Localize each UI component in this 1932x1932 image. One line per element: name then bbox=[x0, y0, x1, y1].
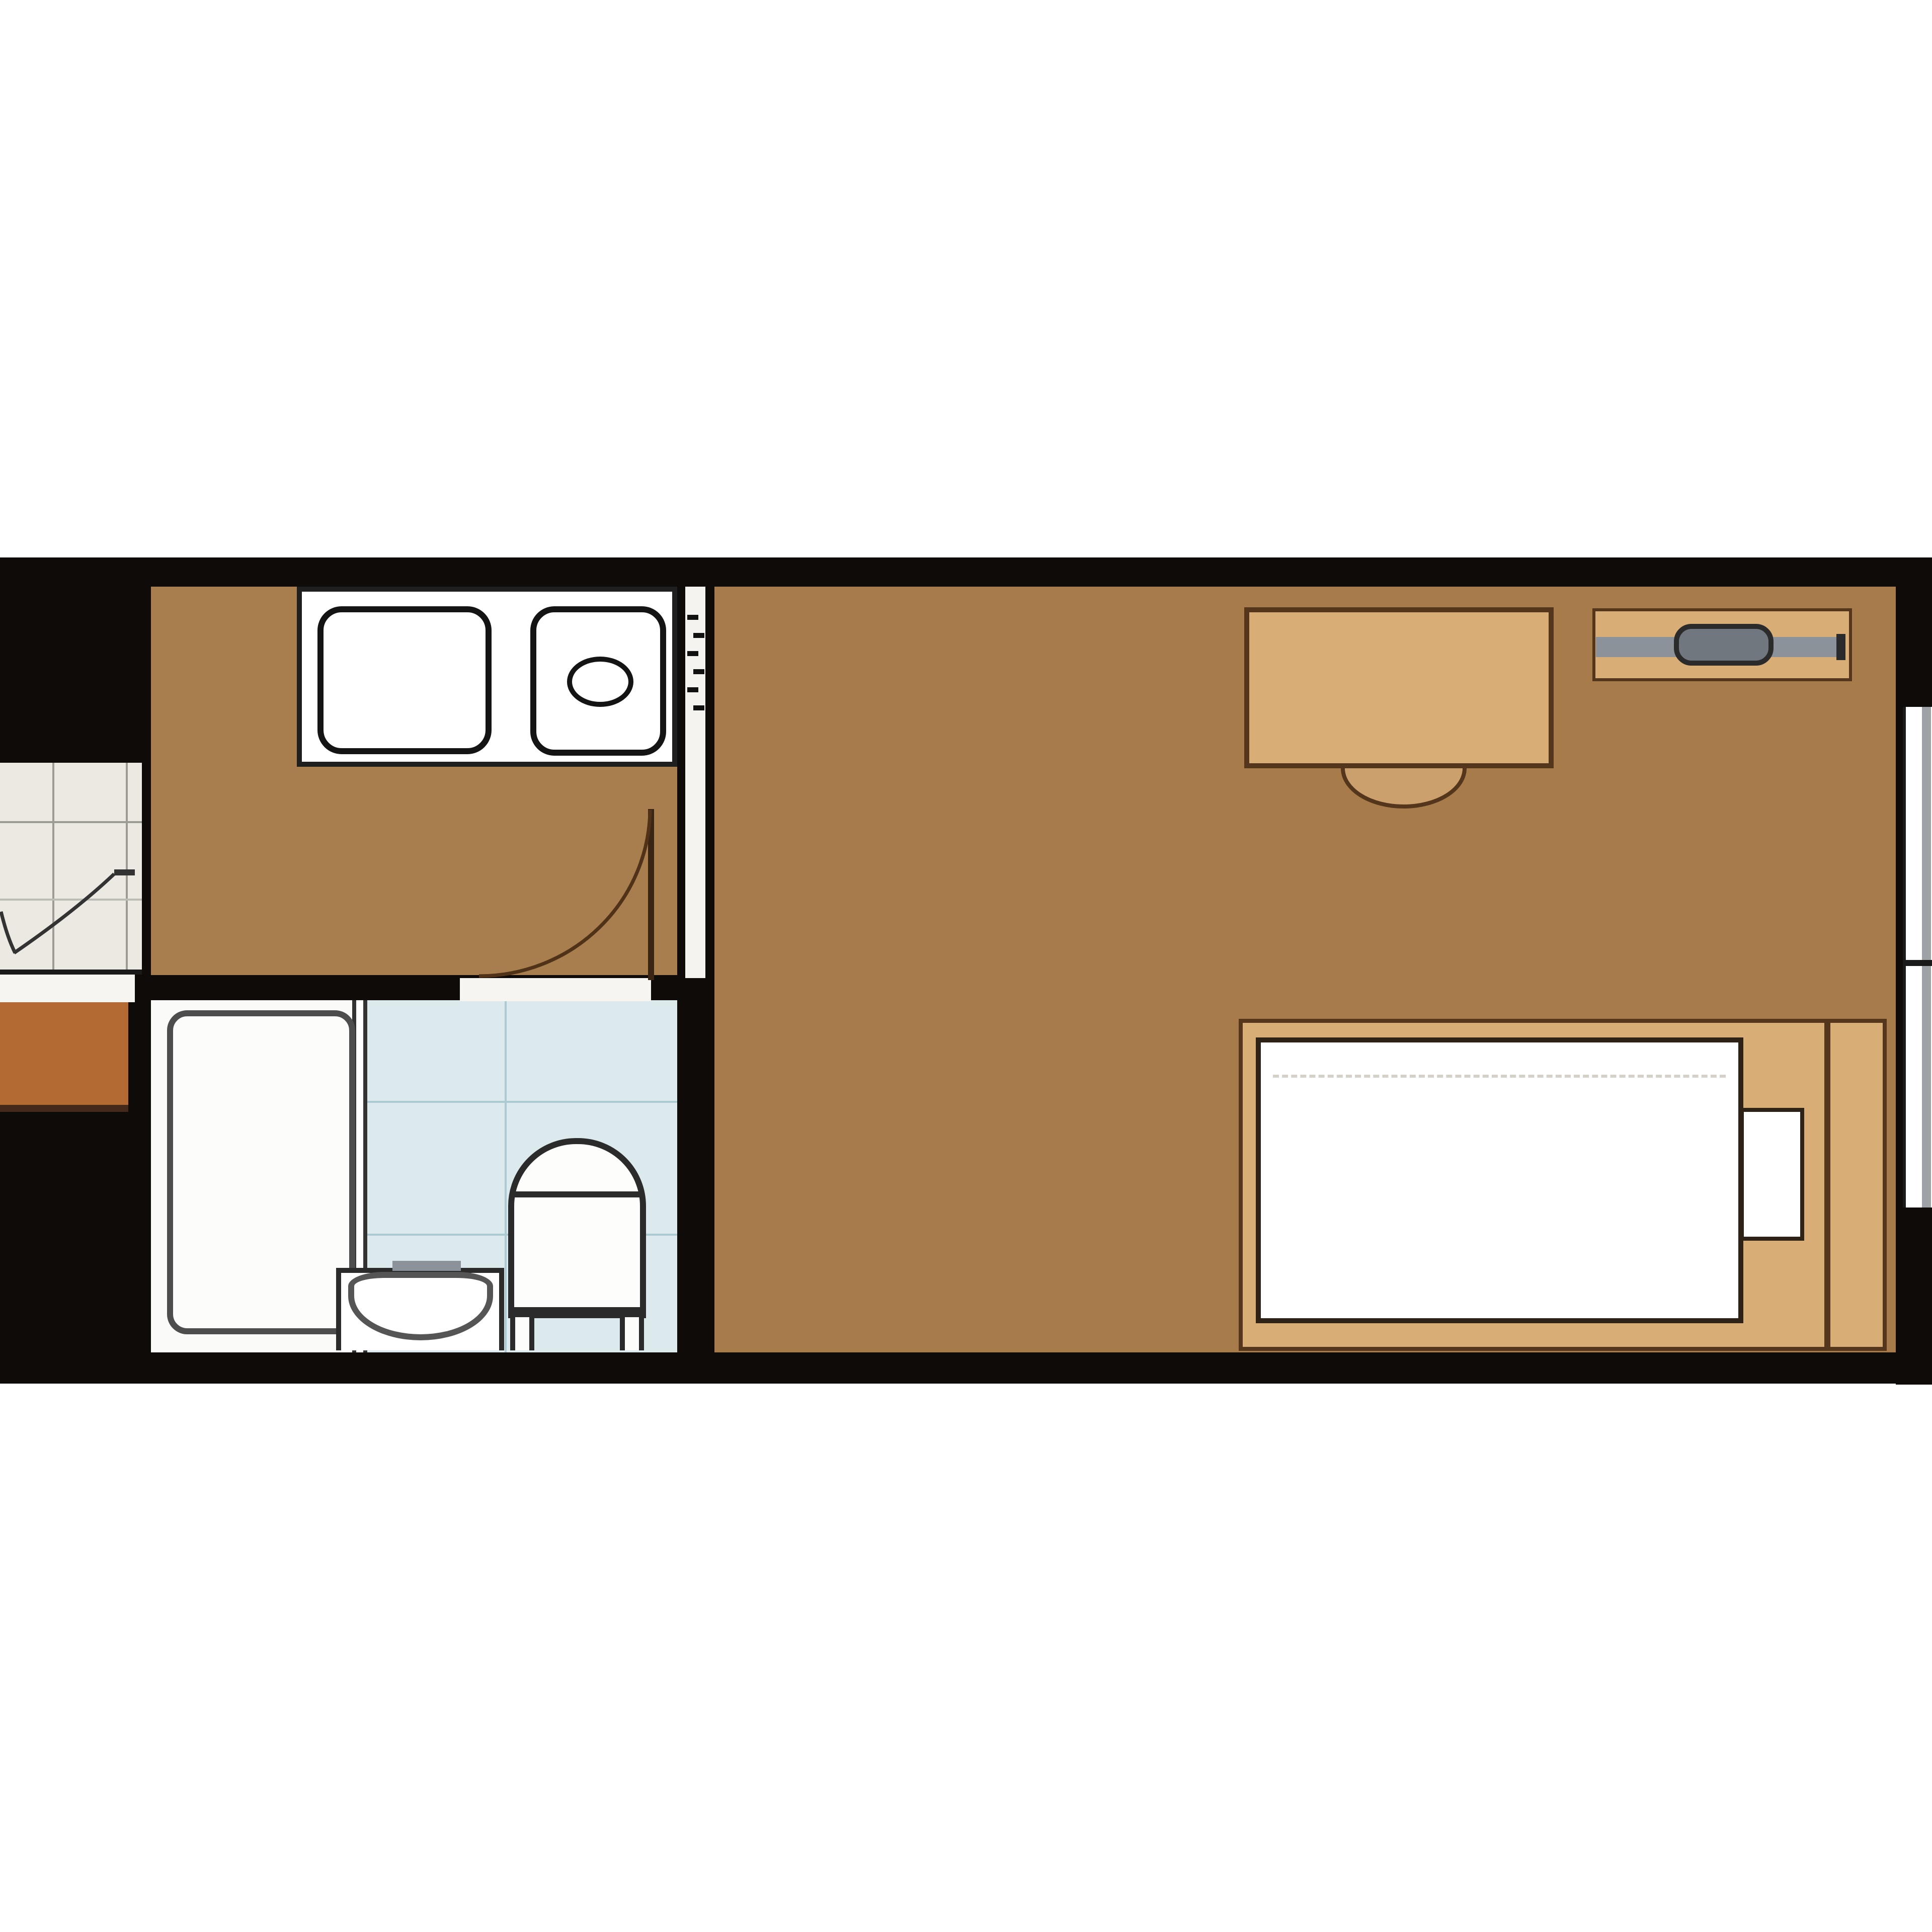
window-divider bbox=[1903, 960, 1932, 966]
toilet-tank-line bbox=[514, 1191, 640, 1197]
floor-plan bbox=[0, 0, 1932, 1932]
washroom-grid-h1 bbox=[366, 1101, 677, 1103]
pillow bbox=[1740, 1108, 1804, 1241]
partition-tick-4 bbox=[693, 669, 704, 674]
hanger-rail-endcap bbox=[1836, 634, 1845, 660]
partition-tick-6 bbox=[693, 705, 704, 710]
sink-basin-large bbox=[317, 606, 492, 754]
toilet bbox=[508, 1138, 646, 1318]
toilet-foot-left bbox=[510, 1317, 534, 1350]
corridor-tile-grid-v2 bbox=[126, 763, 128, 970]
kitchen-door-threshold bbox=[460, 978, 651, 1001]
wall-bottom bbox=[0, 1352, 1932, 1384]
corridor-tile-floor bbox=[0, 763, 142, 970]
partition-tick-5 bbox=[687, 687, 698, 692]
bed-frame-inner-line bbox=[1824, 1021, 1830, 1348]
corridor-tile-grid-h1 bbox=[0, 821, 142, 823]
partition-tick-3 bbox=[687, 651, 698, 656]
window-outer-gray bbox=[1922, 707, 1931, 1207]
wall-top bbox=[0, 557, 1932, 587]
sink-drain bbox=[567, 657, 633, 707]
mattress bbox=[1256, 1037, 1743, 1323]
kitchen-door-leaf bbox=[648, 809, 654, 980]
corridor-threshold bbox=[0, 975, 135, 1002]
hanger-knob bbox=[1674, 624, 1774, 666]
corridor-bottom-line bbox=[0, 970, 142, 975]
toilet-base-bar bbox=[508, 1307, 646, 1317]
partition-tick-1 bbox=[687, 615, 698, 620]
corridor-tile-grid-h2 bbox=[0, 899, 142, 901]
entry-step-block bbox=[0, 1002, 128, 1112]
sliding-partition bbox=[685, 587, 705, 978]
washbasin-top-bar bbox=[392, 1261, 461, 1271]
corridor-tile-grid-v1 bbox=[52, 763, 54, 970]
washroom-grid-v bbox=[505, 1000, 507, 1352]
bathtub bbox=[167, 1010, 355, 1334]
window-frame-line bbox=[1903, 707, 1906, 1207]
desk bbox=[1244, 607, 1554, 768]
toilet-foot-right bbox=[620, 1317, 644, 1350]
partition-tick-2 bbox=[693, 633, 704, 638]
corridor-door-leaf bbox=[114, 869, 135, 875]
mattress-stitch-line bbox=[1273, 1075, 1726, 1078]
